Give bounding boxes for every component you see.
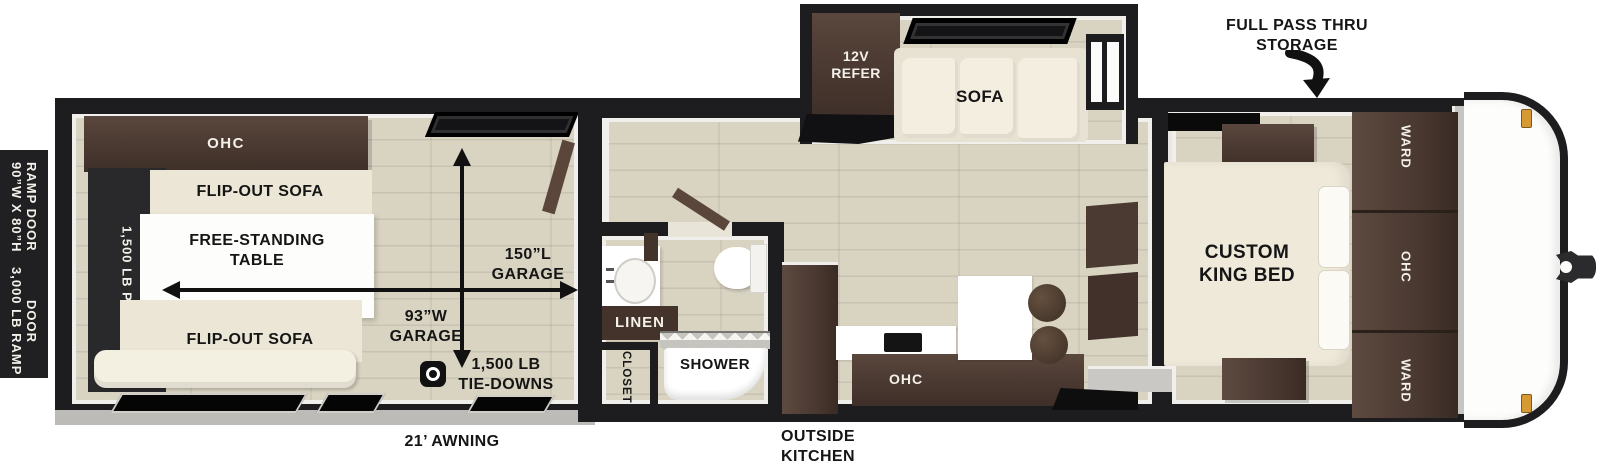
bed-pillow bbox=[1318, 186, 1350, 268]
flip-out-sofa-top-label: FLIP-OUT SOFA bbox=[160, 182, 360, 202]
garage-window bbox=[316, 393, 386, 413]
garage-length-label: 150”L GARAGE bbox=[484, 244, 572, 286]
window-pane bbox=[1107, 42, 1119, 102]
sink-basin bbox=[614, 258, 656, 304]
rv-floorplan: 90”W X 80”H RAMP DOOR 3,000 LB RAMP DOOR… bbox=[0, 0, 1600, 466]
slide-roof-vent bbox=[903, 18, 1076, 44]
refrigerator: 12V REFER bbox=[812, 13, 900, 117]
cabinet-divider bbox=[1352, 210, 1458, 213]
marker-light-bottom bbox=[1521, 394, 1532, 413]
bathroom-upper-cabinet bbox=[644, 233, 658, 261]
faucet-icon bbox=[606, 268, 614, 271]
tie-downs-label: 1,500 LB TIE-DOWNS bbox=[448, 354, 564, 396]
free-standing-table-label: FREE-STANDING TABLE bbox=[150, 230, 364, 272]
window-pane bbox=[1091, 42, 1102, 102]
bedroom-wardrobe-wall: WARD OHC WARD bbox=[1352, 112, 1458, 418]
ward-bottom-label: WARD bbox=[1396, 352, 1416, 410]
sofa-label: SOFA bbox=[930, 86, 1030, 108]
stool bbox=[1028, 284, 1066, 322]
tie-down-ring bbox=[426, 367, 440, 381]
storage-arrow-icon bbox=[1280, 50, 1336, 100]
entry-passage-wall bbox=[1088, 366, 1172, 392]
outside-kitchen-label: OUTSIDE KITCHEN bbox=[762, 428, 874, 466]
closet-wall-h bbox=[594, 342, 658, 350]
ramp-door-label-strip: 90”W X 80”H RAMP DOOR 3,000 LB RAMP DOOR bbox=[0, 150, 48, 378]
pantry-cabinet bbox=[782, 262, 838, 414]
refrigerator-label: 12V REFER bbox=[812, 13, 900, 117]
flip-out-sofa-bottom-label: FLIP-OUT SOFA bbox=[150, 330, 350, 350]
ramp-door-dimensions-label: 90”W X 80”H RAMP DOOR bbox=[0, 150, 48, 264]
stool bbox=[1030, 326, 1068, 364]
bedroom-ohc-label: OHC bbox=[1396, 244, 1416, 290]
garage-overhead-cabinet: OHC bbox=[84, 116, 368, 172]
awning-label: 21’ AWNING bbox=[392, 432, 512, 452]
closet-label: CLOSET bbox=[606, 352, 646, 402]
living-wall-cabinet bbox=[1088, 272, 1138, 340]
shower-label: SHOWER bbox=[664, 348, 766, 382]
garage-roof-vent bbox=[425, 112, 579, 137]
kitchen-ohc-label: OHC bbox=[876, 370, 936, 390]
hitch-notch bbox=[1560, 261, 1572, 273]
tie-down-icon bbox=[420, 361, 446, 387]
slide-window bbox=[1086, 34, 1124, 110]
living-wall-cabinet bbox=[1086, 202, 1138, 269]
cabinet-divider bbox=[1352, 330, 1458, 333]
toilet-tank bbox=[750, 244, 767, 293]
ramp-door-capacity-label: 3,000 LB RAMP DOOR bbox=[0, 264, 48, 378]
garage-ohc-label: OHC bbox=[84, 116, 368, 172]
garage-living-wall-face bbox=[602, 122, 609, 222]
cooktop bbox=[884, 333, 922, 352]
faucet-icon bbox=[606, 280, 614, 283]
flip-out-sofa-bottom-cushion bbox=[94, 350, 356, 388]
kitchen-peninsula bbox=[958, 276, 1032, 360]
front-cap-body bbox=[1464, 100, 1560, 420]
closet-wall-v bbox=[650, 342, 658, 406]
king-bed-label: CUSTOM KING BED bbox=[1172, 238, 1322, 290]
garage-width-label: 93”W GARAGE bbox=[382, 306, 470, 348]
shower-curtain bbox=[660, 331, 770, 349]
marker-light-top bbox=[1521, 109, 1532, 128]
bed-pillow bbox=[1318, 270, 1350, 350]
garage-window bbox=[467, 395, 555, 413]
ward-top-label: WARD bbox=[1396, 118, 1416, 176]
garage-window bbox=[110, 393, 308, 413]
nightstand-bottom bbox=[1222, 358, 1306, 400]
